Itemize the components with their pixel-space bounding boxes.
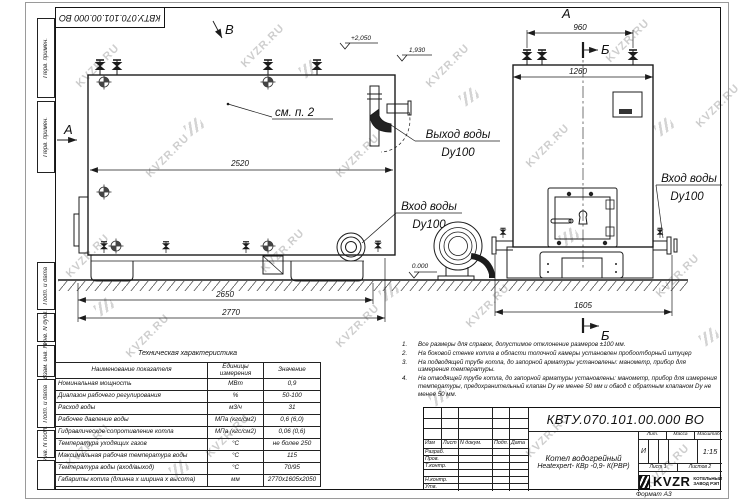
table-row: Температура воды (вход/выход)°С70/95 xyxy=(56,463,321,475)
kvzr-logo-text: KVZR xyxy=(653,474,690,489)
table-row: Максимальная рабочая температура воды°С1… xyxy=(56,451,321,463)
kvzr-logo-icon xyxy=(639,475,650,489)
tb-doc-number: КВТУ.070.101.00.000 ВО xyxy=(528,408,722,431)
table-row: Габариты котла (длинна х ширина х высота… xyxy=(56,475,321,487)
note-item: 3.На подводящей трубе котла, до запорной… xyxy=(402,359,718,375)
tb-header-podp: Подп. xyxy=(493,440,510,448)
table-row: Гидравлическое сопротивление котлаМПа (к… xyxy=(56,427,321,439)
format-label: Формат А3 xyxy=(636,491,672,498)
table-row: Диапазон рабочего регулирования%50-100 xyxy=(56,391,321,403)
tech-characteristics: Техническая характеристика Наименование … xyxy=(55,350,320,487)
margin-cell-inv-podl: Инв. N подл. xyxy=(37,430,55,458)
drawing-sheet: { "watermark": {"text": "KVZR.RU"}, "sta… xyxy=(0,0,750,500)
table-row: Температура уходящих газов°Сне более 250 xyxy=(56,439,321,451)
table-row: Рабочее давление водыМПа (кгс/см2)0,6 (6… xyxy=(56,415,321,427)
margin-cell-perv-primen: Перв. примен. xyxy=(37,18,55,98)
tech-col-name: Наименование показателя xyxy=(56,363,208,379)
title-block: Изм Лист N докум. Подп. Дата Разраб. Про… xyxy=(423,407,721,490)
tb-row-utv: Утв. xyxy=(424,484,459,491)
tb-company: KVZR КОТЕЛЬНЫЙЗАВОД РЭП xyxy=(638,471,722,491)
margin-cell-vzam-inv: Взам. инв. N xyxy=(37,345,55,377)
note-item: 1.Все размеры для справок, допустимое от… xyxy=(402,341,718,349)
tech-col-value: Значение xyxy=(264,363,321,379)
tb-product-name: Котел водогрейный Heatexpert- КВр -0,9- … xyxy=(528,431,638,491)
notes-list: 1.Все размеры для справок, допустимое от… xyxy=(402,341,718,399)
table-row: Расход водым3/ч31 xyxy=(56,403,321,415)
margin-cell-empty xyxy=(37,460,55,490)
margin-cell-podp-data-2: Подп. и дата xyxy=(37,379,55,428)
tb-sheet-row: Лист 1 Листов 2 xyxy=(638,463,722,471)
tb-header-doc: N докум. xyxy=(459,440,493,448)
note-item: 2.На боковой стенке котла в области топо… xyxy=(402,350,718,358)
note-item: 4.На отводящей трубе котла, до запорной … xyxy=(402,375,718,398)
company-name: КОТЕЛЬНЫЙЗАВОД РЭП xyxy=(693,477,722,487)
tb-scale-value: 1:15 xyxy=(698,440,722,463)
tb-lit-header: Лит.МассаМасштаб xyxy=(638,431,722,439)
tb-header-izm: Изм xyxy=(424,440,442,448)
tech-col-units: Единицы измерения xyxy=(208,363,264,379)
tb-header-list: Лист xyxy=(442,440,459,448)
table-row: Номинальная мощностьМВт0,9 xyxy=(56,379,321,391)
margin-cell-inv-dubl: Инв. N дубл. xyxy=(37,313,55,342)
margin-cell-podp-data: Подп. и дата xyxy=(37,262,55,310)
top-stamp: КВТУ.070.101.00.000 ВО xyxy=(55,7,165,28)
tech-table-title: Техническая характеристика xyxy=(55,350,320,362)
tb-lit-values: И 1:15 xyxy=(638,439,722,463)
tech-table: Наименование показателя Единицы измерени… xyxy=(55,362,321,487)
tb-header-data: Дата xyxy=(510,440,528,448)
margin-cell-perv-primen-2: Перв. примен. xyxy=(37,101,55,173)
